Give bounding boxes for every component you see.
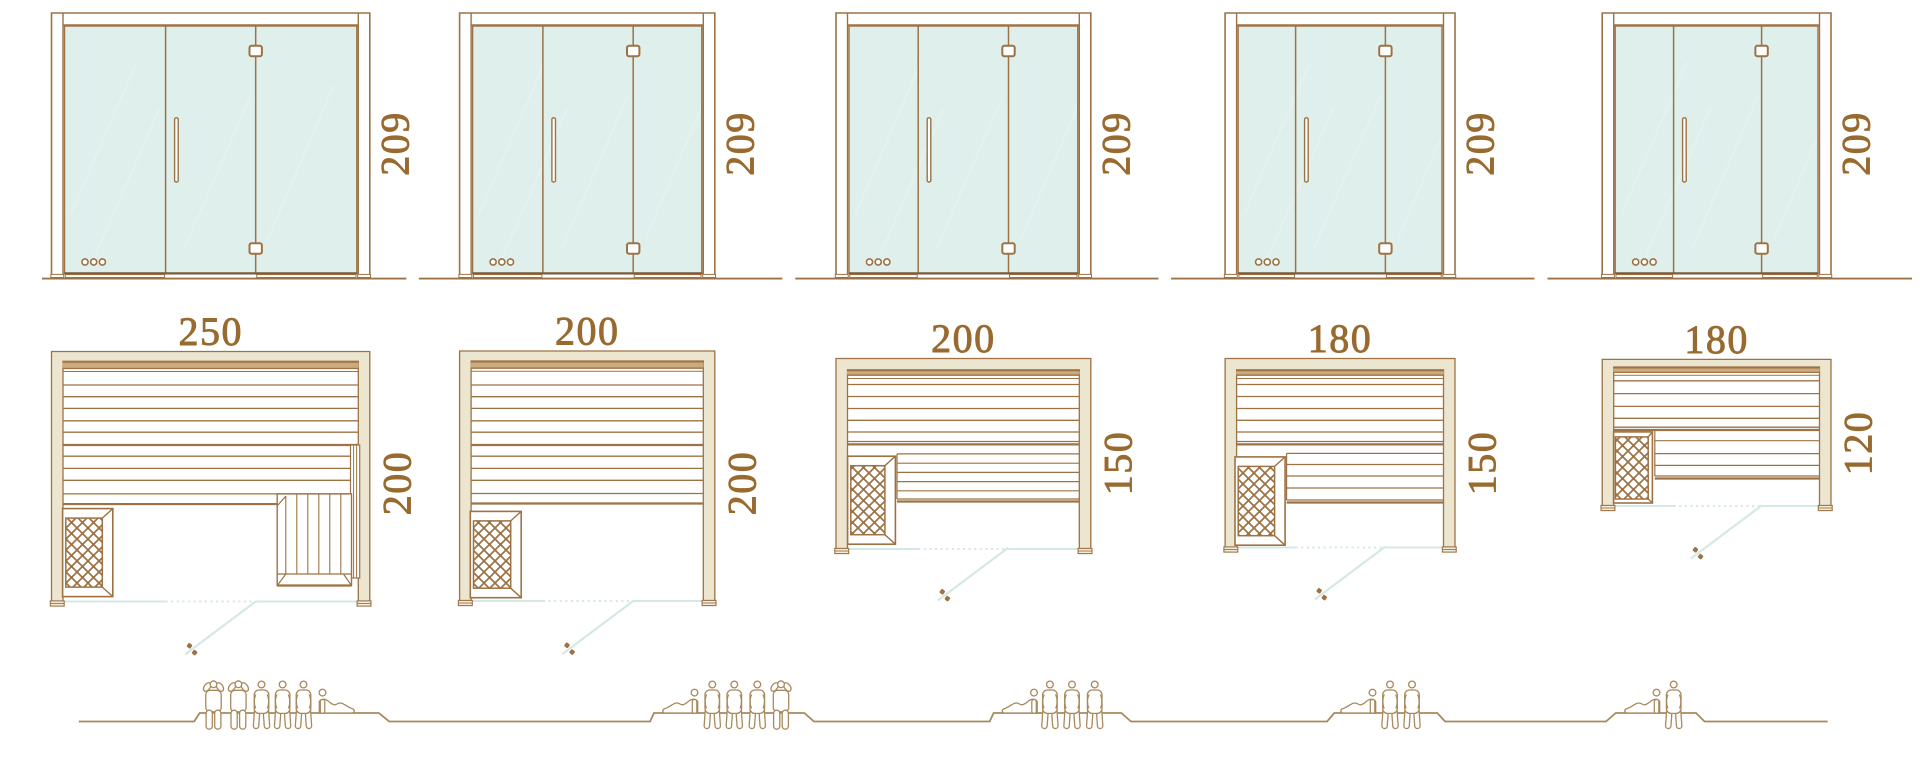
- svg-text:250: 250: [178, 309, 243, 354]
- svg-text:200: 200: [931, 316, 996, 361]
- svg-text:180: 180: [1308, 316, 1373, 361]
- svg-text:200: 200: [719, 451, 764, 516]
- svg-text:209: 209: [717, 111, 762, 176]
- svg-text:150: 150: [1095, 431, 1140, 496]
- svg-text:200: 200: [374, 451, 419, 516]
- svg-text:209: 209: [1458, 111, 1503, 176]
- svg-text:209: 209: [1093, 111, 1138, 176]
- svg-text:120: 120: [1836, 411, 1881, 476]
- svg-text:180: 180: [1684, 317, 1749, 362]
- svg-text:200: 200: [555, 309, 620, 354]
- svg-text:150: 150: [1460, 431, 1505, 496]
- svg-text:209: 209: [1834, 111, 1879, 176]
- svg-text:209: 209: [372, 111, 417, 176]
